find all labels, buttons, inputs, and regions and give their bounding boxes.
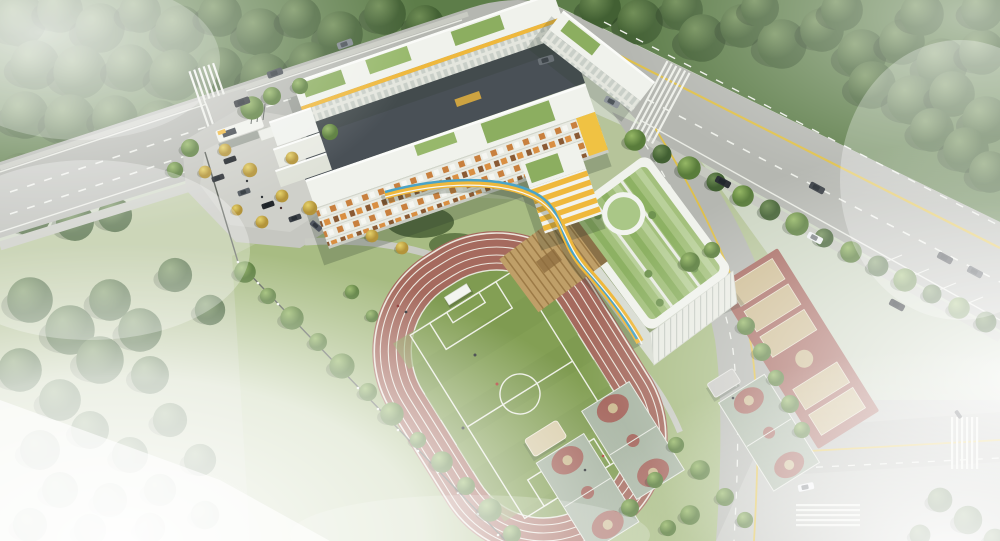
fog-overlay — [0, 0, 1000, 541]
screenshot-root — [0, 0, 1000, 541]
aerial-render — [0, 0, 1000, 541]
